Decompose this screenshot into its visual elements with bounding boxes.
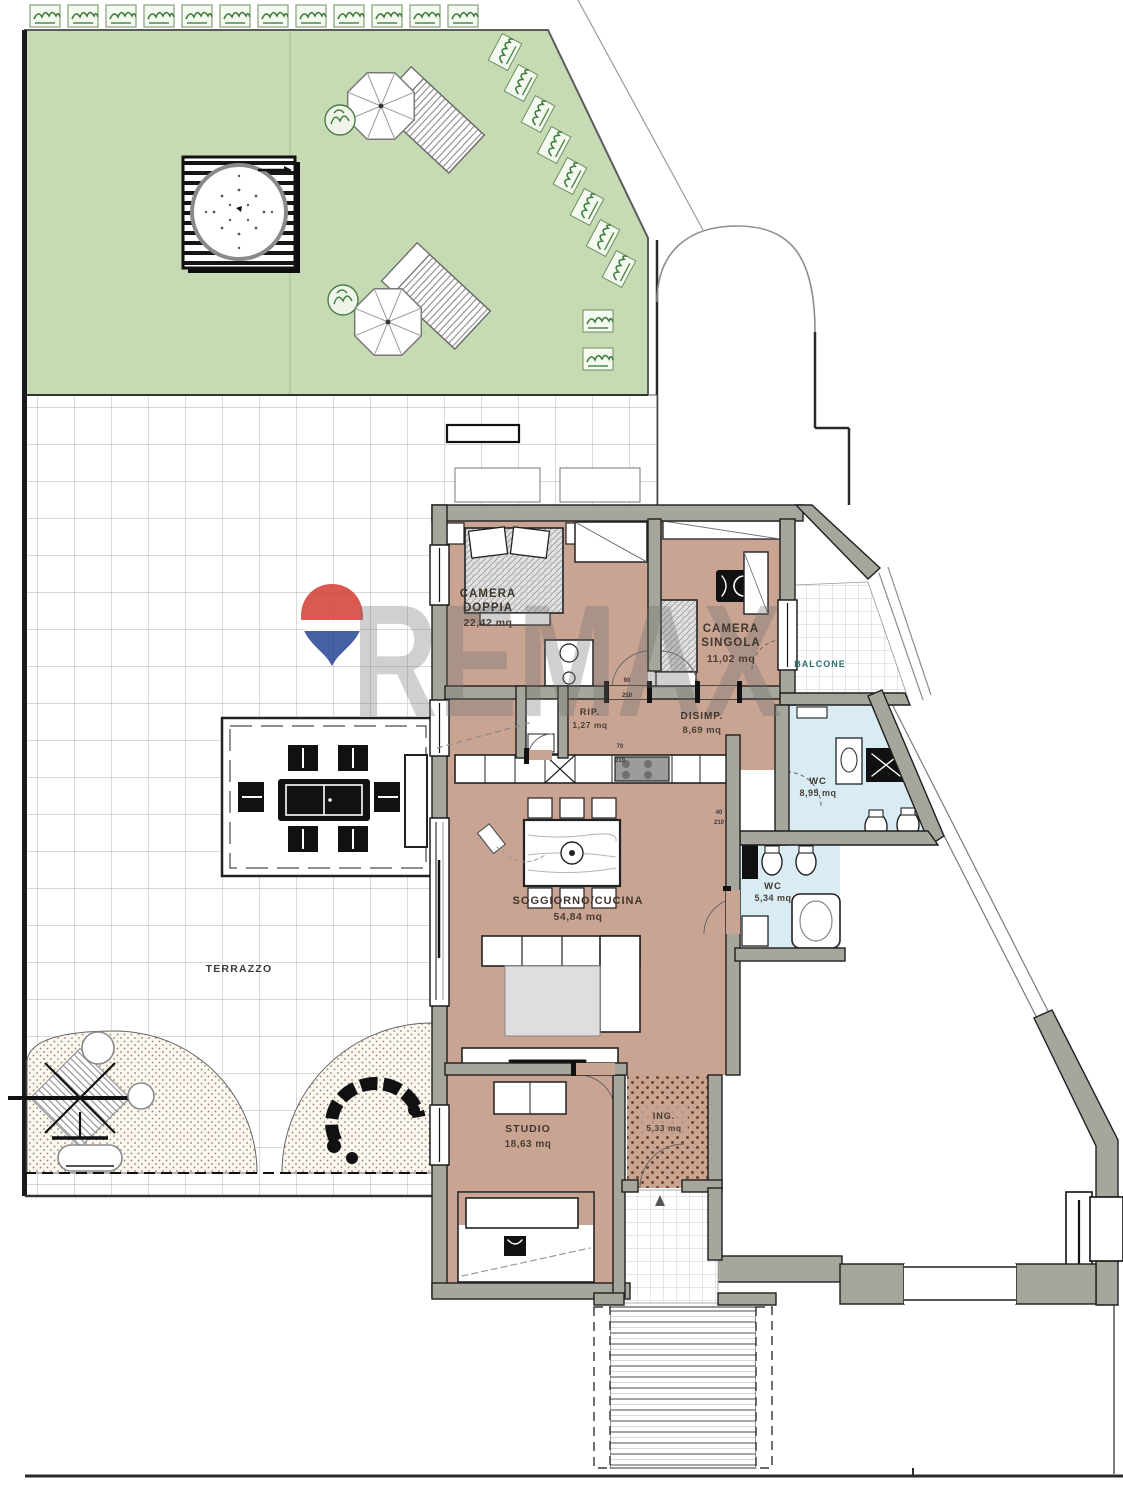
umbrella-icon bbox=[355, 289, 422, 356]
svg-text:210: 210 bbox=[622, 693, 633, 699]
wardrobe-icon bbox=[575, 522, 647, 562]
studio-cabinet-icon bbox=[494, 1082, 566, 1114]
svg-text:5,33 mq: 5,33 mq bbox=[646, 1123, 681, 1133]
entry-lobby-floor bbox=[622, 1190, 718, 1303]
hedge-planter-row bbox=[30, 5, 478, 27]
label-terrazzo: TERRAZZO bbox=[206, 963, 273, 975]
svg-text:SINGOLA: SINGOLA bbox=[701, 637, 760, 649]
spa-icon bbox=[183, 157, 300, 273]
svg-text:8,69 mq: 8,69 mq bbox=[683, 725, 722, 736]
dining-table bbox=[524, 798, 620, 908]
neighbor-window-band bbox=[904, 1264, 1016, 1304]
svg-text:DOPPIA: DOPPIA bbox=[463, 602, 513, 614]
svg-text:5,34 mq: 5,34 mq bbox=[754, 893, 791, 903]
chair-icon bbox=[504, 1236, 526, 1256]
wall-planter bbox=[560, 468, 640, 502]
desk-icon bbox=[466, 1198, 578, 1228]
outdoor-bench bbox=[405, 755, 427, 847]
nightstand-icon bbox=[447, 523, 464, 544]
sliding-door bbox=[430, 818, 449, 1006]
svg-text:8,95 mq: 8,95 mq bbox=[799, 788, 836, 798]
wall-stub bbox=[447, 425, 519, 442]
svg-text:90: 90 bbox=[624, 678, 631, 684]
svg-text:54,84 mq: 54,84 mq bbox=[554, 911, 603, 923]
svg-text:70: 70 bbox=[617, 744, 624, 750]
label-studio: STUDIO bbox=[505, 1123, 551, 1135]
floor-plan-root: REMAX CAMERA DOPPIA 22,42 mq CAMERA SING… bbox=[0, 0, 1123, 1487]
sofa-icon bbox=[482, 936, 640, 1036]
studio-desk-area bbox=[458, 1192, 594, 1282]
label-camera-singola: CAMERA bbox=[703, 623, 759, 635]
label-wc-grande: WC bbox=[809, 776, 827, 787]
label-disimpegno: DISIMP. bbox=[681, 711, 724, 722]
sink-icon bbox=[742, 916, 768, 946]
bathtub-icon bbox=[792, 894, 840, 948]
label-balcone: BALCONE bbox=[794, 659, 846, 669]
svg-text:11,02 mq: 11,02 mq bbox=[707, 653, 755, 665]
label-soggiorno: SOGGIORNO/CUCINA bbox=[513, 895, 644, 907]
plant-icon bbox=[325, 105, 355, 135]
svg-text:210: 210 bbox=[615, 758, 626, 764]
plant-icon bbox=[328, 285, 358, 315]
wall-planter bbox=[455, 468, 540, 502]
floor-plan-canvas: REMAX CAMERA DOPPIA 22,42 mq CAMERA SING… bbox=[0, 0, 1123, 1487]
label-camera-doppia: CAMERA bbox=[460, 588, 516, 600]
left-border-wall bbox=[22, 30, 27, 1196]
svg-text:1,27 mq: 1,27 mq bbox=[572, 720, 607, 730]
label-ingresso: ING. bbox=[653, 1111, 676, 1121]
shelf-icon bbox=[663, 521, 780, 539]
rug bbox=[505, 966, 600, 1036]
svg-text:210: 210 bbox=[714, 820, 725, 826]
svg-text:18,63 mq: 18,63 mq bbox=[505, 1139, 552, 1150]
svg-text:40: 40 bbox=[716, 810, 723, 816]
umbrella-icon bbox=[348, 73, 415, 140]
label-wc-piccolo: WC bbox=[764, 881, 782, 892]
column-icon bbox=[742, 845, 758, 879]
radiator-icon bbox=[797, 707, 827, 718]
svg-text:22,42 mq: 22,42 mq bbox=[464, 617, 513, 629]
balcony-floor bbox=[795, 582, 908, 698]
garden-area bbox=[25, 5, 648, 395]
label-ripostiglio: RIP. bbox=[580, 707, 600, 717]
external-stairs bbox=[594, 1307, 772, 1468]
